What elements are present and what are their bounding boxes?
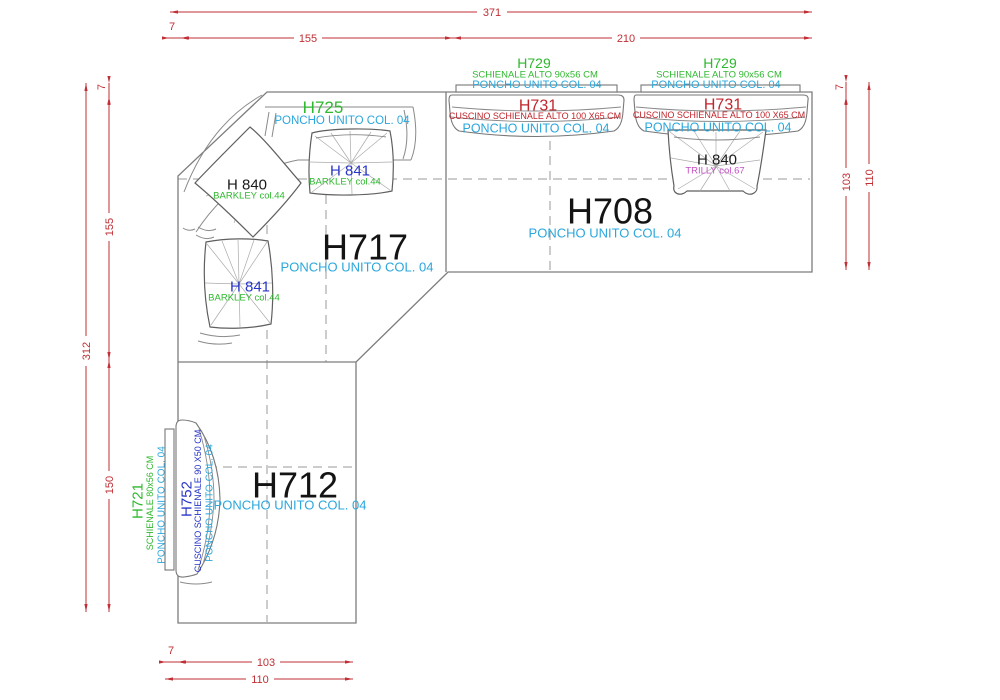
- dim-right-total: 110: [864, 169, 876, 187]
- label-h752-size: CUSCINO SCHIENALE 90 X50 CM: [193, 430, 203, 573]
- label-h717-fabric: PONCHO UNITO COL. 04: [281, 260, 434, 275]
- technical-drawing: 371 7 155 210 312 7 155 150 7 103 110 7 …: [0, 0, 1000, 700]
- dim-right-offset: 7: [834, 84, 846, 90]
- label-h731-left-size: CUSCINO SCHIENALE ALTO 100 X65 CM: [449, 111, 621, 121]
- dim-right-inner: 103: [841, 173, 853, 191]
- label-h752-fabric: PONCHO UNITO COL. 04: [205, 444, 216, 562]
- label-h721-fabric: PONCHO UNITO COL. 04: [157, 446, 168, 564]
- label-h721-size: SCHIENALE 80x56 CM: [145, 456, 155, 551]
- dim-left-lower: 150: [104, 476, 116, 494]
- dim-left-offset: 7: [96, 84, 108, 90]
- label-h841-top-fabric: BARKLEY col.44: [309, 176, 381, 187]
- dim-top-offset: 7: [169, 21, 175, 33]
- label-h729-right-fabric: PONCHO UNITO COL. 04: [651, 79, 780, 91]
- label-h721-code: H721: [129, 483, 146, 519]
- label-h725-fabric: PONCHO UNITO COL. 04: [274, 115, 410, 127]
- label-h731-right-fabric: PONCHO UNITO COL. 04: [644, 120, 791, 134]
- dim-top-total: 371: [483, 7, 501, 19]
- label-h840-left-fabric: BARKLEY col.44: [213, 190, 285, 201]
- dim-top-left: 155: [299, 33, 317, 45]
- label-h729-left-fabric: PONCHO UNITO COL. 04: [472, 79, 601, 91]
- dim-left-upper: 155: [104, 218, 116, 236]
- label-h841-bottom-fabric: BARKLEY col.44: [208, 292, 280, 303]
- label-h712-fabric: PONCHO UNITO COL. 04: [214, 498, 367, 513]
- label-h731-right-size: CUSCINO SCHIENALE ALTO 100 X65 CM: [633, 110, 805, 120]
- cad-sofa-plan-canvas: 371 7 155 210 312 7 155 150 7 103 110 7 …: [0, 0, 1000, 700]
- label-h731-left-fabric: PONCHO UNITO COL. 04: [462, 121, 609, 135]
- label-h840-right-fabric: TRILLY col.67: [685, 165, 744, 176]
- dim-bottom-offset: 7: [168, 645, 174, 657]
- dim-bottom-total: 110: [251, 674, 269, 686]
- dim-left-total: 312: [81, 342, 93, 360]
- dim-top-right: 210: [617, 33, 635, 45]
- label-h708-fabric: PONCHO UNITO COL. 04: [529, 226, 682, 241]
- dim-bottom-inner: 103: [257, 657, 275, 669]
